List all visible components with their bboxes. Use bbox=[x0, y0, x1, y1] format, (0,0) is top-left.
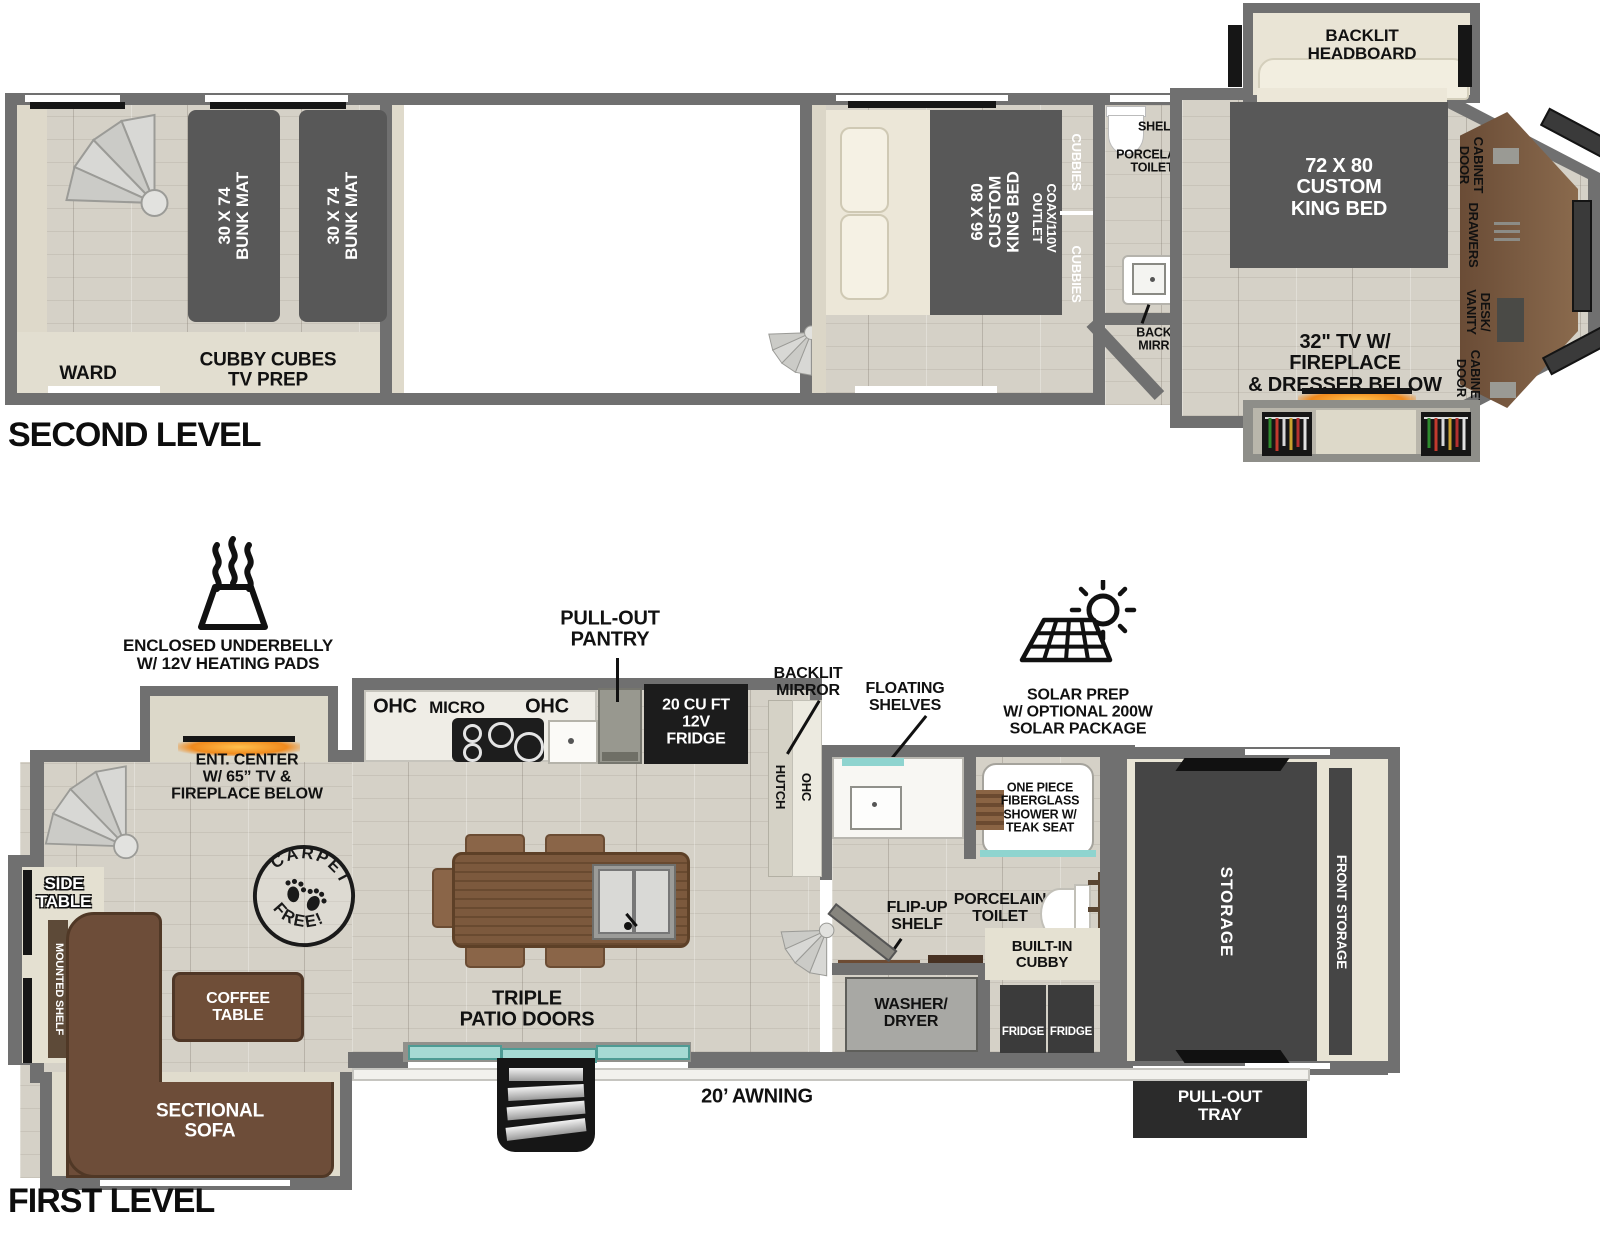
pointer-line bbox=[616, 658, 619, 702]
kitchen-top-wall bbox=[352, 678, 822, 690]
burner bbox=[463, 743, 482, 762]
storage-label: STORAGE bbox=[1217, 867, 1235, 958]
front-storage-label: FRONT STORAGE bbox=[1334, 855, 1348, 969]
washer-dryer-label: WASHER/ DRYER bbox=[874, 996, 947, 1030]
bunk-mat-label: 30 X 74 BUNK MAT bbox=[325, 172, 361, 260]
pantry-handle bbox=[602, 752, 638, 761]
bunk-mat-label: 30 X 74 BUNK MAT bbox=[216, 172, 252, 260]
coffee-table-label: COFFEE TABLE bbox=[206, 990, 270, 1024]
drawer-lines bbox=[1494, 230, 1520, 233]
tv-bar bbox=[183, 736, 295, 742]
patio-door-pane bbox=[596, 1045, 690, 1060]
bath-top-wall bbox=[820, 745, 1135, 757]
drawer-lines bbox=[1494, 238, 1520, 241]
mounted-shelf-label: MOUNTED SHELF bbox=[52, 943, 64, 1035]
burner bbox=[488, 722, 514, 748]
bath-storage-wall bbox=[1100, 757, 1127, 1061]
window bbox=[205, 95, 348, 102]
micro-label: MICRO bbox=[429, 699, 485, 717]
triple-patio-doors-label: TRIPLE PATIO DOORS bbox=[460, 989, 595, 1032]
bottom-wall bbox=[348, 1052, 408, 1068]
desk-block bbox=[1497, 298, 1524, 342]
burner bbox=[463, 724, 482, 743]
sectional-sofa-label: SECTIONAL SOFA bbox=[156, 1102, 264, 1143]
faucet-dot bbox=[568, 738, 574, 744]
cabinet-front bbox=[1490, 382, 1516, 398]
ent-center-label: ENT. CENTER W/ 65” TV & FIREPLACE BELOW bbox=[171, 751, 323, 802]
pull-out-tray-label: PULL-OUT TRAY bbox=[1178, 1088, 1262, 1124]
wall-segment bbox=[352, 678, 364, 762]
spiral-staircase-icon bbox=[52, 108, 177, 218]
sink-icon-bowl bbox=[1132, 263, 1166, 295]
open-to-below-area bbox=[392, 105, 800, 393]
ohc-label: OHC bbox=[373, 696, 417, 717]
drawer-lines bbox=[1494, 222, 1520, 225]
window bbox=[1245, 749, 1330, 755]
sink-drain bbox=[872, 802, 877, 807]
hanging-clothes-icon bbox=[1262, 412, 1312, 456]
awning-bar bbox=[352, 1068, 1310, 1081]
tv-fireplace-label: 32" TV W/ FIREPLACE & DRESSER BELOW bbox=[1248, 332, 1442, 396]
fridge-12v-label: 20 CU FT 12V FRIDGE bbox=[662, 696, 730, 747]
solar-prep-icon bbox=[1010, 580, 1140, 672]
storage-vent bbox=[1175, 1050, 1289, 1063]
fridge-label: FRIDGE bbox=[1002, 1026, 1044, 1038]
rv-floorplan-canvas: 30 X 74 BUNK MAT 30 X 74 BUNK MAT WARD C… bbox=[0, 0, 1600, 1241]
spiral-staircase-icon bbox=[32, 760, 147, 860]
loft-edge-strip bbox=[392, 105, 404, 393]
pull-out-pantry-label: PULL-OUT PANTRY bbox=[560, 609, 660, 652]
vanity-sink-icon bbox=[850, 786, 902, 830]
pillow bbox=[840, 214, 889, 300]
cubbies-label: CUBBIES bbox=[1069, 133, 1083, 190]
king-bed-72-label: 72 X 80 CUSTOM KING BED bbox=[1291, 156, 1387, 220]
cabinet-front bbox=[1493, 148, 1519, 164]
heated-underbelly-icon bbox=[165, 535, 295, 635]
sink-drain bbox=[1150, 277, 1155, 282]
shower-label: ONE PIECE FIBERGLASS SHOWER W/ TEAK SEAT bbox=[1001, 781, 1080, 835]
cabinet-door-label: CABINET DOOR bbox=[1454, 350, 1482, 406]
patio-door-pane bbox=[408, 1045, 502, 1060]
island-sink-basin bbox=[634, 869, 670, 934]
pillow bbox=[840, 127, 889, 213]
king-bed-66-label: 66 X 80 CUSTOM KING BED bbox=[969, 171, 1024, 253]
window bbox=[23, 978, 32, 1063]
window bbox=[848, 101, 996, 108]
window bbox=[210, 102, 346, 109]
wall-segment bbox=[832, 963, 980, 975]
faucet-icon bbox=[624, 922, 632, 930]
window bbox=[1228, 25, 1242, 87]
drawers-label: DRAWERS bbox=[1466, 202, 1480, 267]
cabinet-door-label: CABINET DOOR bbox=[1457, 137, 1485, 193]
wardrobe-center bbox=[1316, 410, 1416, 454]
flip-up-shelf-label: FLIP-UP SHELF bbox=[887, 899, 948, 933]
burner bbox=[514, 732, 544, 762]
underbelly-label: ENCLOSED UNDERBELLY W/ 12V HEATING PADS bbox=[123, 637, 333, 673]
ohc-label: OHC bbox=[525, 696, 569, 717]
wall-segment bbox=[964, 757, 976, 859]
backlit-shelf-teal bbox=[842, 758, 904, 766]
tv-bar bbox=[1302, 388, 1412, 394]
backlit-mirror-label: BACKLIT MIRROR bbox=[774, 665, 843, 699]
desk-vanity-label: DESK/ VANITY bbox=[1464, 289, 1492, 335]
side-table-label: SIDE TABLE bbox=[37, 875, 91, 911]
storage-right-wall bbox=[1388, 747, 1400, 1073]
second-level-title: SECOND LEVEL bbox=[8, 416, 260, 455]
ohc-hutch-label: OHC bbox=[799, 773, 813, 801]
staircase-up-icon bbox=[775, 905, 837, 997]
entry-step bbox=[509, 1068, 583, 1081]
built-in-cubby-label: BUILT-IN CUBBY bbox=[1012, 939, 1073, 971]
fridge-label: FRIDGE bbox=[1050, 1026, 1092, 1038]
ward-label: WARD bbox=[59, 364, 116, 384]
floating-shelves-label: FLOATING SHELVES bbox=[866, 680, 945, 714]
fridge bbox=[1000, 985, 1046, 1053]
awning-label: 20’ AWNING bbox=[701, 1086, 813, 1107]
bed-slide-wall bbox=[812, 105, 826, 393]
cubbies-label: CUBBIES bbox=[1069, 245, 1083, 302]
window bbox=[25, 95, 120, 102]
cubby-cubes-label: CUBBY CUBES TV PREP bbox=[200, 351, 337, 392]
window bbox=[1572, 200, 1592, 312]
fridge bbox=[1048, 985, 1094, 1053]
hutch-label: HUTCH bbox=[773, 765, 787, 810]
porcelain-toilet-label: PORCELAIN TOILET bbox=[954, 891, 1046, 925]
solar-prep-label: SOLAR PREP W/ OPTIONAL 200W SOLAR PACKAG… bbox=[1003, 686, 1152, 737]
shower-threshold-teal bbox=[980, 850, 1096, 857]
backlit-headboard-label: BACKLIT HEADBOARD bbox=[1308, 27, 1417, 63]
first-level-title: FIRST LEVEL bbox=[8, 1182, 214, 1221]
hanging-clothes-icon bbox=[1421, 412, 1471, 456]
coax-outlet-label: COAX/110V OUTLET bbox=[1030, 183, 1058, 252]
window bbox=[1458, 25, 1472, 87]
window bbox=[855, 386, 997, 393]
left-slide-wall bbox=[8, 855, 22, 1065]
storage-vent bbox=[1175, 758, 1289, 771]
window bbox=[48, 386, 160, 393]
window bbox=[23, 870, 32, 955]
